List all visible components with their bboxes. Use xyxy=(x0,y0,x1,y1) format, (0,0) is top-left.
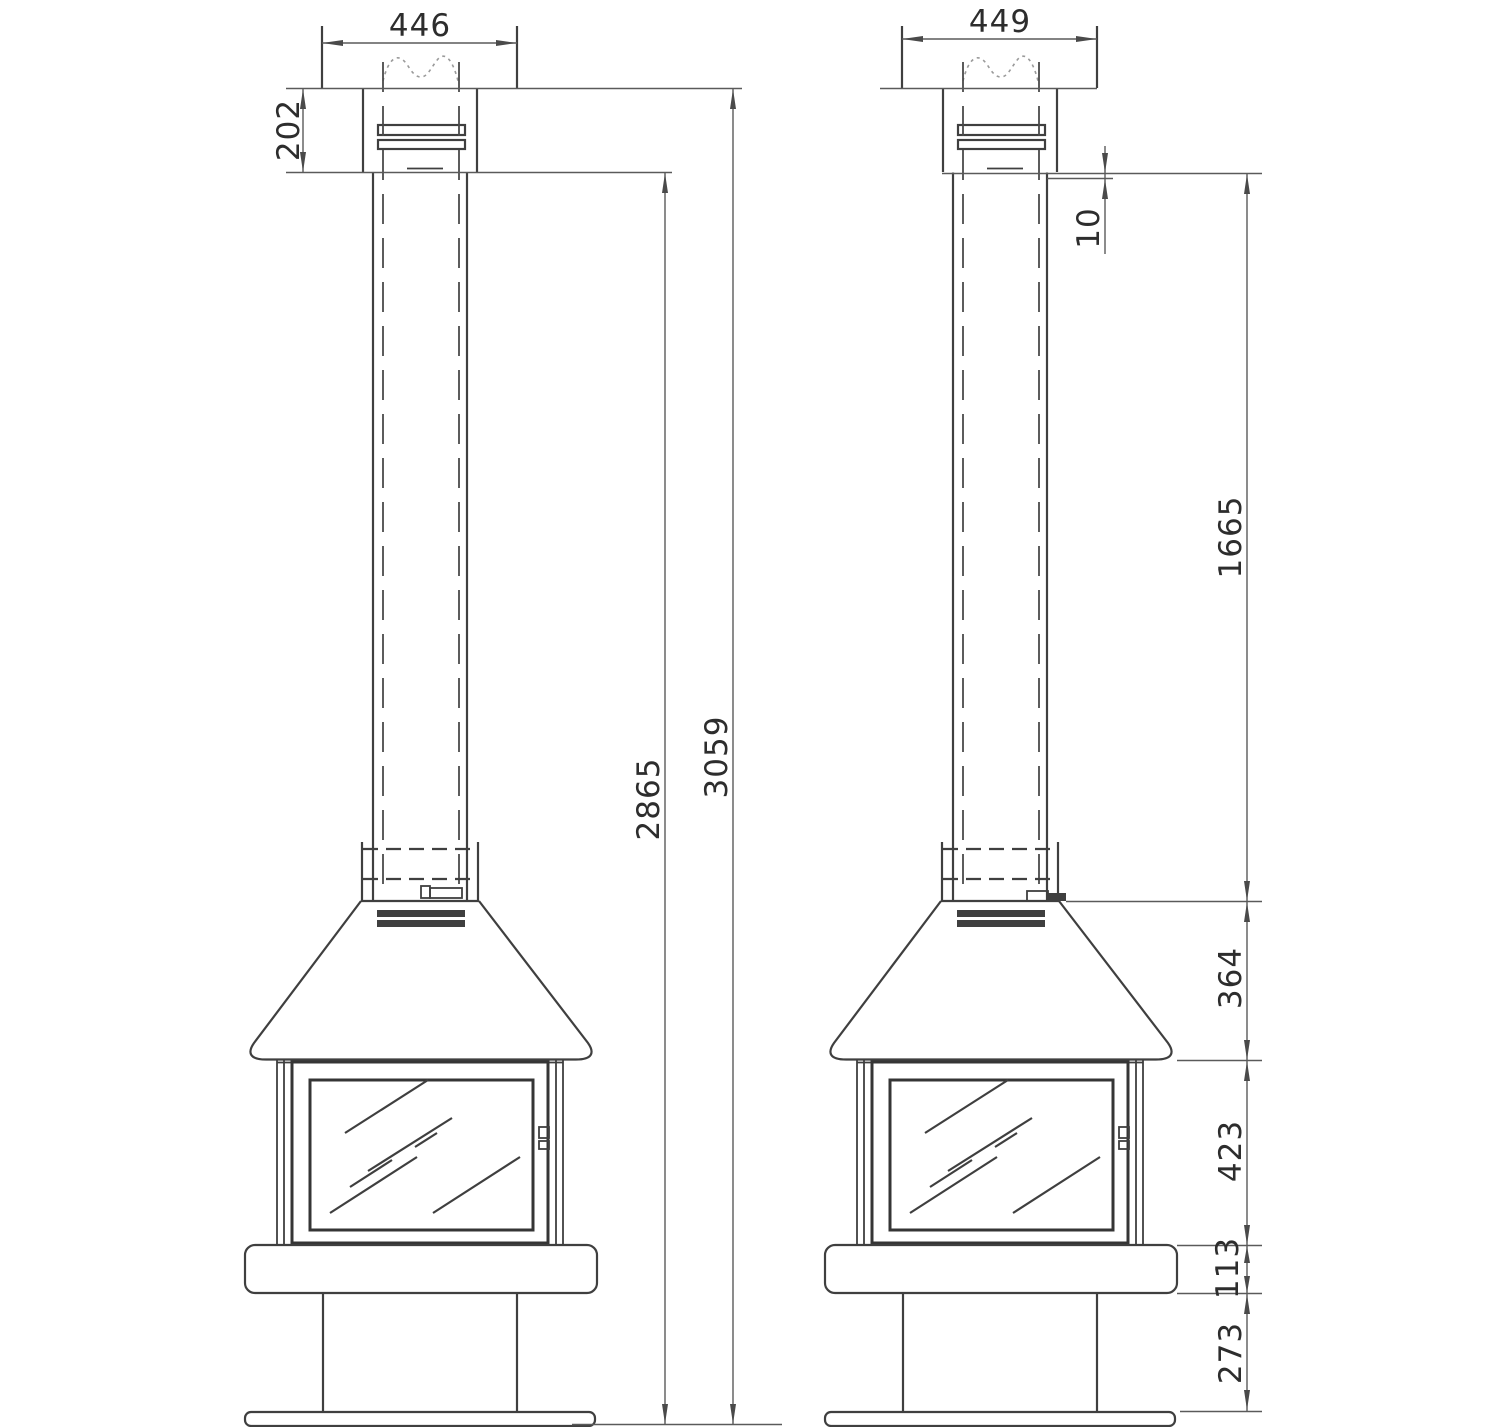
arrow-left-icon xyxy=(322,40,343,46)
side-extension-lines xyxy=(880,89,1262,1412)
arrow-down-icon xyxy=(1244,1390,1250,1410)
arrow-down-icon xyxy=(730,1404,736,1424)
fireplace-technical-drawing-page: 446 202 2865 3059 449 10 xyxy=(0,0,1500,1427)
arrow-right-icon xyxy=(496,40,517,46)
dim-side-firebox-height: 423 xyxy=(1213,1120,1249,1182)
dim-side-top-width: 449 xyxy=(969,4,1031,40)
arrow-right-icon xyxy=(1076,36,1097,42)
arrow-up-icon xyxy=(730,89,736,109)
arrow-up-icon xyxy=(1244,902,1250,922)
dim-side-collar-gap: 10 xyxy=(1071,207,1107,248)
side-view: 449 10 1665 364 423 113 273 xyxy=(825,4,1262,1426)
dim-side-base-height: 113 xyxy=(1210,1237,1246,1299)
arrow-up-icon xyxy=(662,173,668,193)
damper-handle-tab xyxy=(1048,893,1066,901)
dim-side-pedestal-height: 273 xyxy=(1213,1322,1249,1384)
damper-rod xyxy=(1027,891,1048,901)
front-view: 446 202 2865 3059 xyxy=(245,8,782,1426)
arrow-down-icon xyxy=(1102,153,1108,173)
damper-handle-bar xyxy=(430,888,462,898)
dim-side-pipe-length: 1665 xyxy=(1213,496,1249,579)
arrow-up-icon xyxy=(1244,174,1250,194)
damper-handle-knob xyxy=(421,886,430,898)
side-view-body xyxy=(825,26,1177,1426)
arrow-down-icon xyxy=(1244,881,1250,901)
front-view-body xyxy=(245,26,597,1426)
dim-side-hood-height: 364 xyxy=(1213,947,1249,1009)
arrow-up-icon xyxy=(1244,1061,1250,1081)
dim-front-top-width: 446 xyxy=(389,8,451,44)
dim-front-cap-height: 202 xyxy=(271,99,307,161)
arrow-left-icon xyxy=(902,36,923,42)
dim-front-total-height: 3059 xyxy=(699,716,735,799)
technical-drawing: 446 202 2865 3059 449 10 xyxy=(0,0,1500,1427)
arrow-up-icon xyxy=(1102,179,1108,199)
dim-front-body-height: 2865 xyxy=(631,758,667,841)
arrow-down-icon xyxy=(1244,1040,1250,1060)
arrow-down-icon xyxy=(662,1404,668,1424)
